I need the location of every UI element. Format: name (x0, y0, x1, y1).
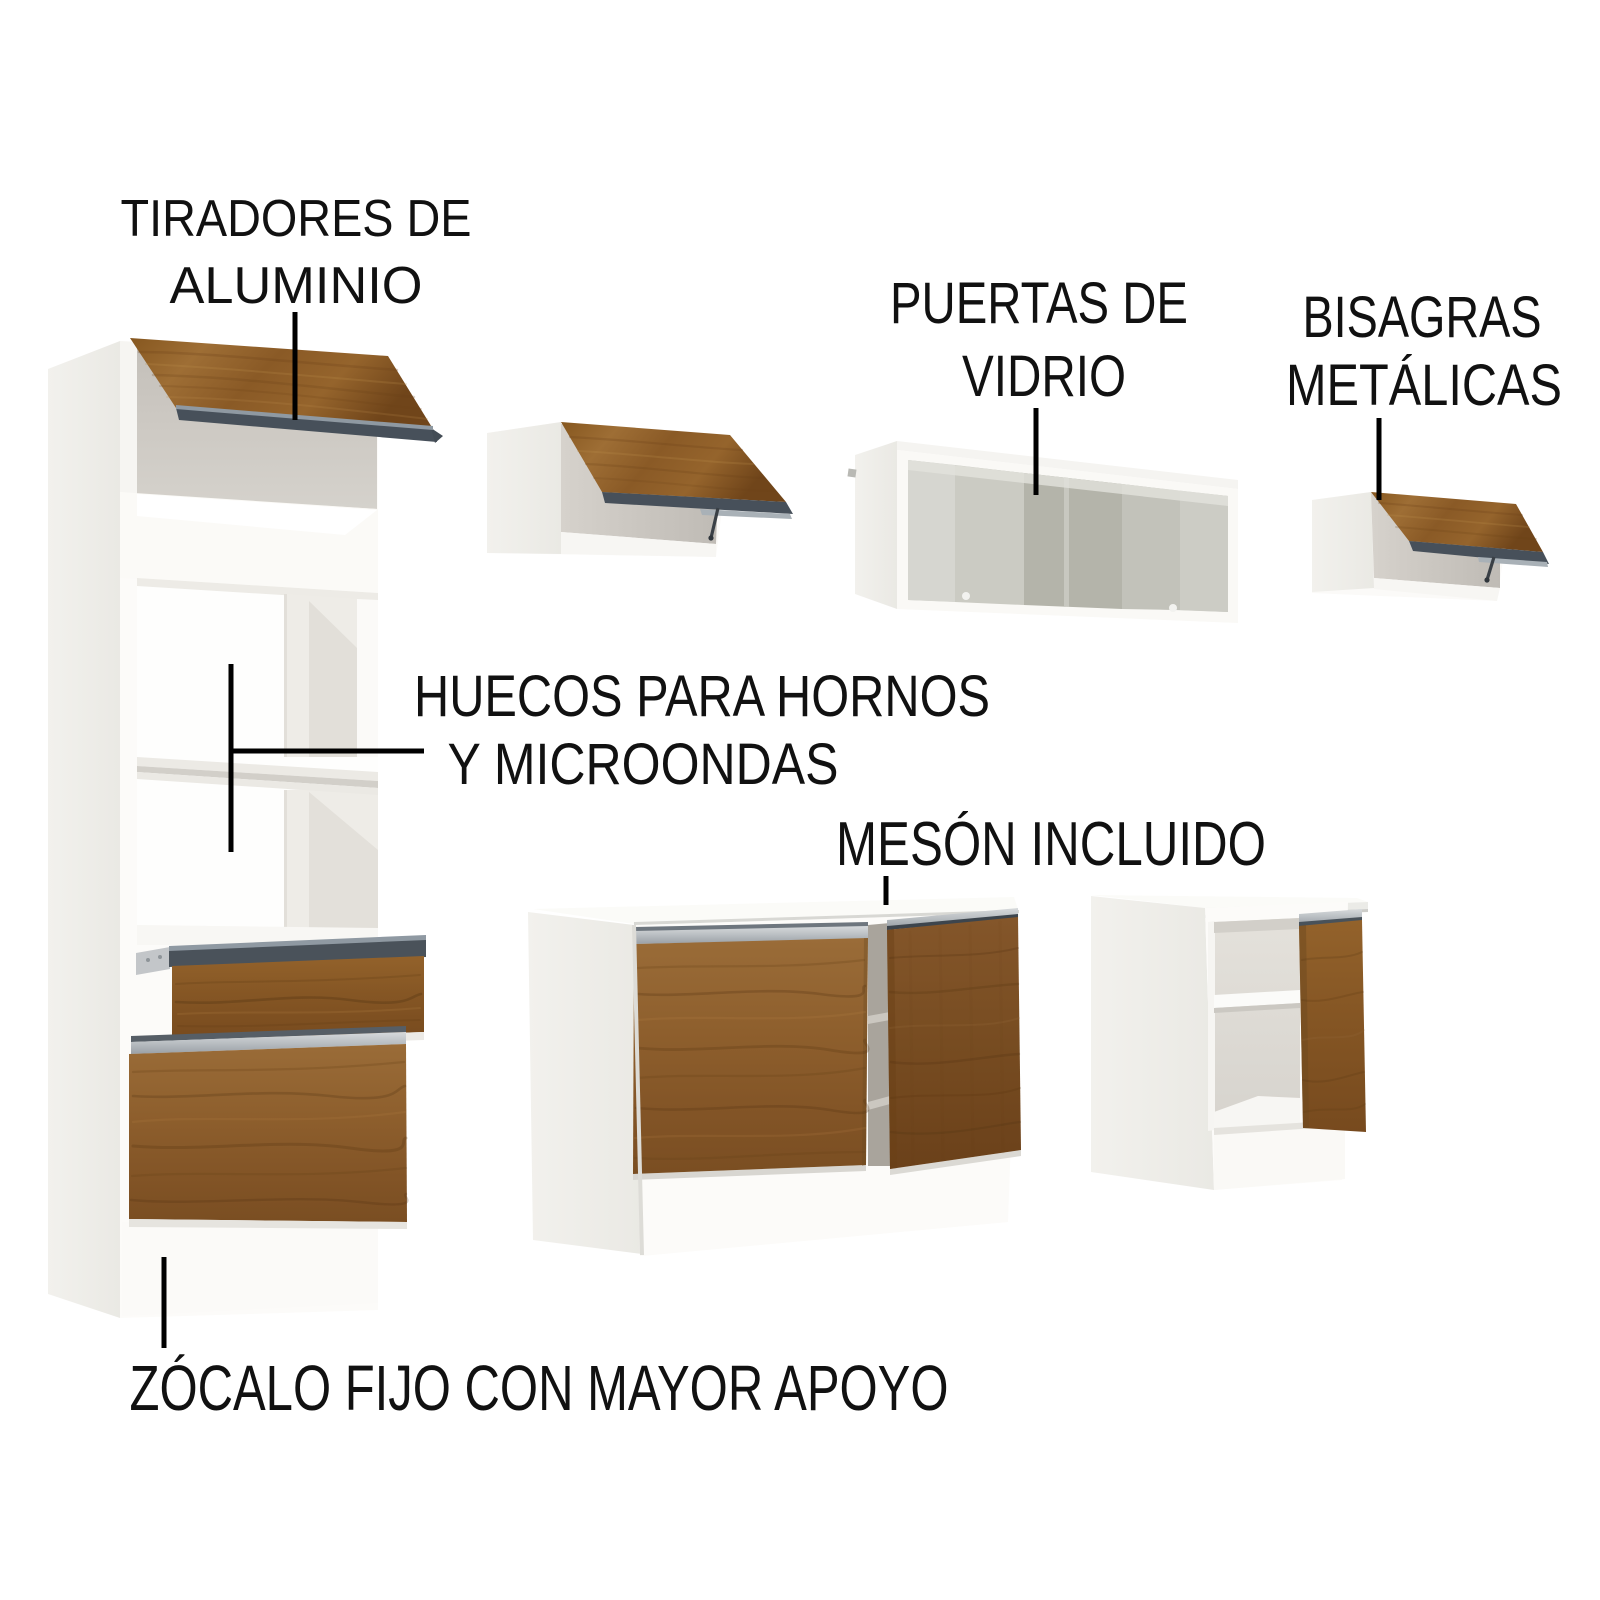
svg-text:METÁLICAS: METÁLICAS (1286, 353, 1562, 418)
svg-text:PUERTAS DE: PUERTAS DE (890, 271, 1188, 336)
svg-text:Y MICROONDAS: Y MICROONDAS (448, 732, 839, 797)
svg-text:BISAGRAS: BISAGRAS (1303, 285, 1542, 350)
svg-text:ZÓCALO FIJO CON MAYOR APOYO: ZÓCALO FIJO CON MAYOR APOYO (130, 1352, 949, 1424)
svg-text:VIDRIO: VIDRIO (962, 344, 1126, 409)
svg-text:TIRADORES DE: TIRADORES DE (121, 190, 472, 248)
svg-text:HUECOS PARA HORNOS: HUECOS PARA HORNOS (414, 664, 990, 729)
svg-text:ALUMINIO: ALUMINIO (170, 257, 423, 315)
svg-text:MESÓN INCLUIDO: MESÓN INCLUIDO (836, 810, 1266, 879)
